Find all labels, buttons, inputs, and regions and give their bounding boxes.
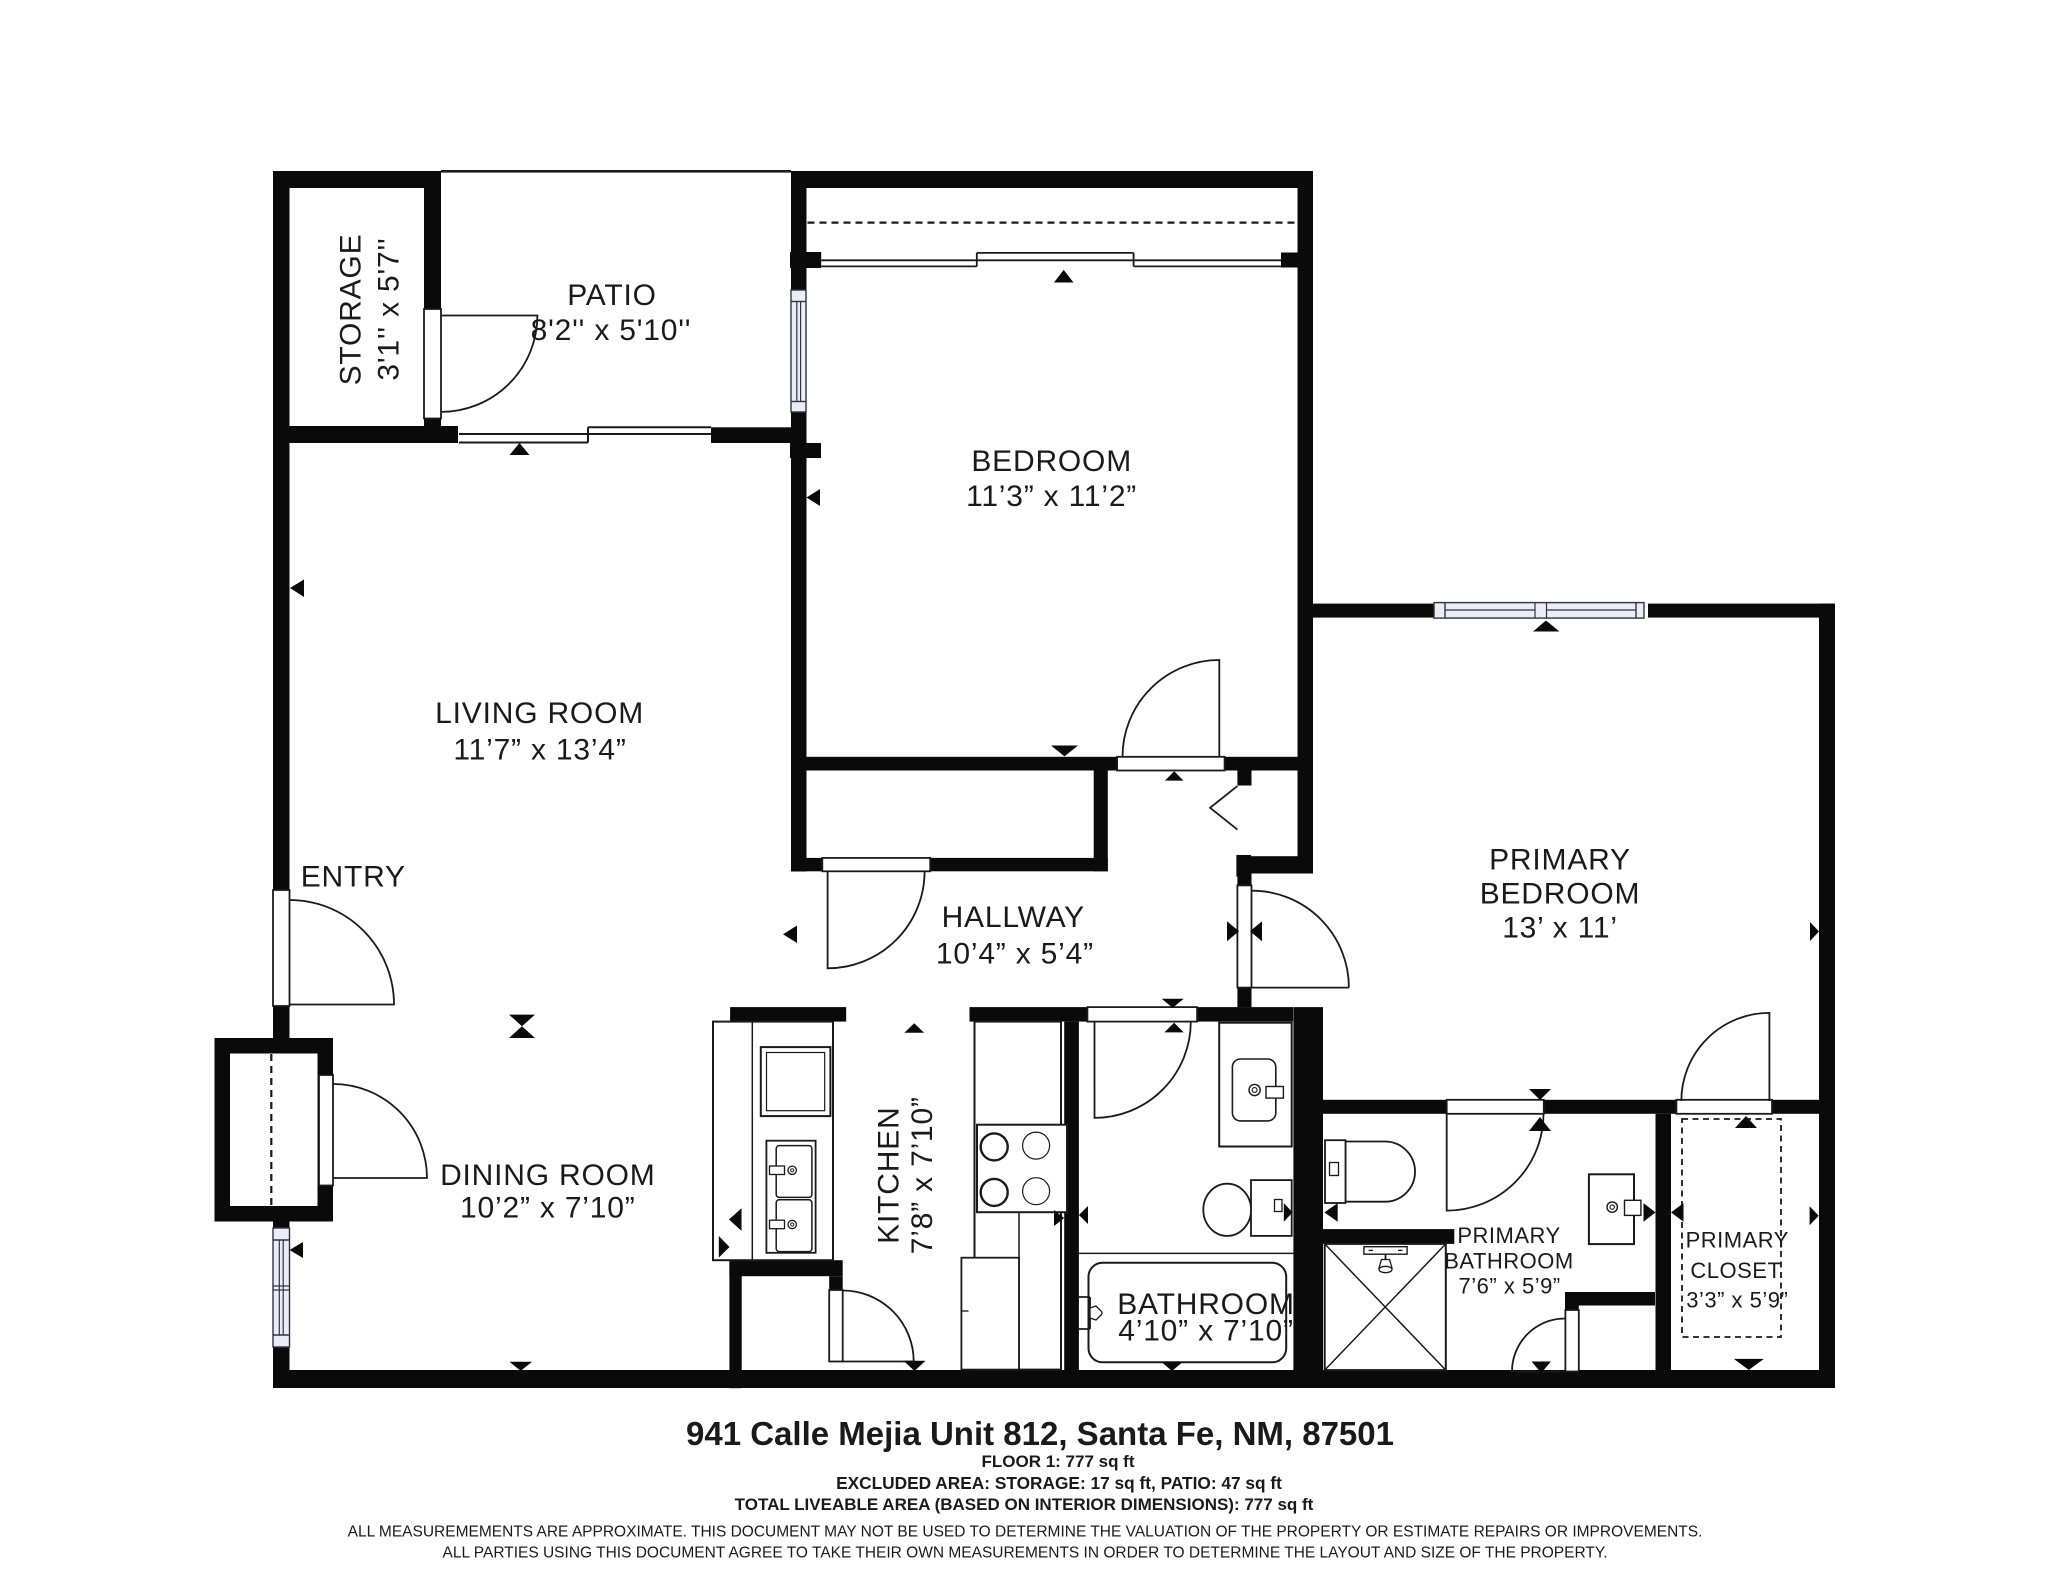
svg-text:3'1'' x 5'7'': 3'1'' x 5'7'' [373, 237, 406, 380]
svg-text:BEDROOM: BEDROOM [971, 445, 1132, 478]
svg-text:PRIMARY: PRIMARY [1457, 1223, 1560, 1248]
svg-text:4’10” x 7’10”: 4’10” x 7’10” [1118, 1315, 1294, 1348]
svg-text:8'2'' x 5'10'': 8'2'' x 5'10'' [531, 314, 692, 347]
svg-text:CLOSET: CLOSET [1690, 1258, 1781, 1283]
svg-text:941 Calle Mejia Unit 812, Sant: 941 Calle Mejia Unit 812, Santa Fe, NM, … [686, 1415, 1394, 1452]
svg-text:3’3” x 5’9”: 3’3” x 5’9” [1686, 1288, 1788, 1313]
svg-text:11’7” x 13’4”: 11’7” x 13’4” [453, 734, 626, 767]
svg-text:EXCLUDED AREA: STORAGE: 17 sq: EXCLUDED AREA: STORAGE: 17 sq ft, PATIO:… [836, 1473, 1282, 1493]
svg-text:KITCHEN: KITCHEN [873, 1107, 906, 1244]
svg-text:BATHROOM: BATHROOM [1444, 1249, 1573, 1274]
svg-text:STORAGE: STORAGE [335, 234, 368, 386]
svg-text:10’4” x 5’4”: 10’4” x 5’4” [936, 937, 1094, 970]
svg-text:BEDROOM: BEDROOM [1480, 877, 1641, 910]
svg-text:PATIO: PATIO [567, 279, 657, 312]
svg-text:TOTAL LIVEABLE AREA (BASED ON: TOTAL LIVEABLE AREA (BASED ON INTERIOR D… [735, 1495, 1314, 1514]
svg-text:HALLWAY: HALLWAY [942, 901, 1085, 934]
svg-text:LIVING ROOM: LIVING ROOM [435, 697, 644, 730]
svg-text:FLOOR 1: 777 sq ft: FLOOR 1: 777 sq ft [981, 1452, 1134, 1471]
svg-text:ENTRY: ENTRY [301, 861, 406, 894]
svg-text:ALL PARTIES USING THIS DOCUMEN: ALL PARTIES USING THIS DOCUMENT AGREE TO… [442, 1545, 1607, 1562]
svg-text:PRIMARY: PRIMARY [1686, 1227, 1789, 1252]
svg-text:7’8” x 7’10”: 7’8” x 7’10” [906, 1096, 939, 1254]
svg-text:10’2” x 7’10”: 10’2” x 7’10” [460, 1191, 636, 1224]
svg-text:13’ x 11’: 13’ x 11’ [1502, 912, 1618, 945]
svg-text:ALL MEASUREMEMENTS ARE APPROXI: ALL MEASUREMEMENTS ARE APPROXIMATE. THIS… [348, 1524, 1703, 1541]
svg-text:7’6” x 5’9”: 7’6” x 5’9” [1459, 1274, 1561, 1299]
svg-text:11’3” x 11’2”: 11’3” x 11’2” [966, 480, 1137, 513]
svg-text:DINING ROOM: DINING ROOM [440, 1159, 655, 1192]
svg-text:PRIMARY: PRIMARY [1489, 844, 1631, 877]
